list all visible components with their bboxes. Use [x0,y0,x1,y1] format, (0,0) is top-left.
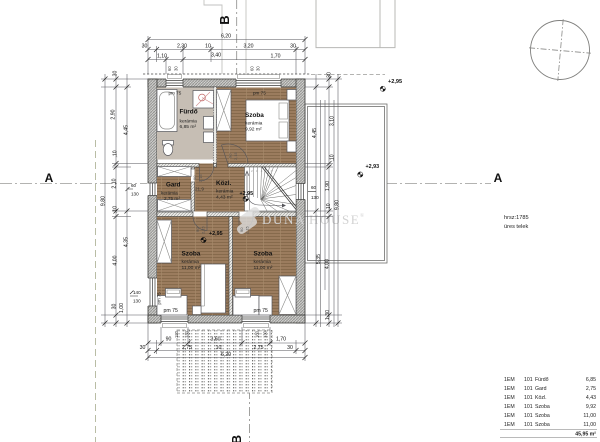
svg-text:3,20: 3,20 [243,44,253,50]
svg-text:2,10: 2,10 [112,178,118,188]
svg-text:101: 101 [524,386,533,392]
svg-text:130: 130 [311,195,319,200]
svg-text:3,60: 3,60 [210,337,220,343]
svg-text:4,00: 4,00 [325,259,331,269]
svg-text:6,20: 6,20 [221,34,231,40]
svg-text:1,70: 1,70 [270,54,280,60]
svg-text:30: 30 [174,66,179,71]
svg-text:kerámia: kerámia [254,259,272,265]
svg-text:30: 30 [142,44,148,50]
svg-text:,10: ,10 [113,150,119,157]
svg-text:A: A [45,171,54,185]
svg-text:Gard: Gard [535,386,547,392]
svg-text:pm 75: pm 75 [254,308,269,314]
svg-text:kerámia: kerámia [182,259,200,265]
svg-text:9,92 m²: 9,92 m² [245,127,262,133]
svg-text:11,00 m²: 11,00 m² [254,265,273,271]
svg-text:üres telek: üres telek [504,224,528,230]
svg-text:60: 60 [250,66,255,71]
svg-text:60: 60 [311,185,317,190]
svg-text:DUNA: DUNA [262,212,306,227]
svg-text:Szoba: Szoba [535,404,550,410]
svg-text:90: 90 [228,153,233,158]
svg-text:3,40: 3,40 [211,53,221,59]
svg-text:Fürdő: Fürdő [535,377,549,383]
svg-text:1EM: 1EM [504,386,515,392]
svg-text:1,10: 1,10 [157,54,167,60]
svg-text:1EM: 1EM [504,395,515,401]
svg-text:130: 130 [131,192,139,197]
svg-text:®: ® [360,212,364,219]
svg-text:10: 10 [205,44,211,50]
svg-text:60: 60 [167,66,172,71]
svg-text:Közl.: Közl. [535,395,547,401]
svg-text:6,20: 6,20 [221,352,231,358]
svg-text:2,15: 2,15 [233,151,238,160]
svg-text:pm 75: pm 75 [169,91,182,96]
svg-text:1EM: 1EM [504,377,515,383]
svg-text:4,43 m²: 4,43 m² [216,195,233,201]
svg-text:4,45: 4,45 [124,125,130,135]
svg-text:kerámia: kerámia [161,191,178,196]
svg-text:130: 130 [263,330,268,338]
svg-text:30: 30 [287,345,293,351]
svg-text:Szoba: Szoba [535,422,550,428]
svg-text:2 3 4 5 6 7: 2 3 4 5 6 7 [251,169,278,173]
svg-text:B: B [229,435,244,442]
svg-text:90: 90 [166,337,172,343]
svg-text:1,00: 1,00 [119,303,125,313]
svg-text:6,85 m²: 6,85 m² [180,124,197,130]
svg-text:30: 30 [113,71,119,77]
svg-text:Szoba: Szoba [254,251,273,258]
svg-text:Fürdő: Fürdő [180,109,198,116]
svg-text:1,70: 1,70 [276,337,286,343]
svg-text:+2,93: +2,93 [366,164,380,170]
svg-text:10: 10 [216,345,222,351]
svg-text:2,75: 2,75 [182,345,192,351]
svg-text:hrsz:1785: hrsz:1785 [504,215,529,221]
svg-text:30: 30 [327,72,333,78]
svg-text:4,35: 4,35 [124,237,130,247]
svg-text:1EM: 1EM [504,422,515,428]
svg-text:130: 130 [185,330,190,338]
svg-text:1EM: 1EM [504,404,515,410]
svg-text:101: 101 [524,413,533,419]
svg-text:9,92: 9,92 [586,404,596,410]
svg-text:90: 90 [195,227,200,232]
svg-text:11,00: 11,00 [583,413,596,419]
svg-text:4,43: 4,43 [586,395,596,401]
svg-text:6,85: 6,85 [586,377,596,383]
svg-text:9,80: 9,80 [101,196,107,206]
svg-text:Szoba: Szoba [535,413,550,419]
svg-text:1,90: 1,90 [325,181,331,191]
svg-text:B: B [217,15,232,24]
svg-text:120: 120 [174,330,179,338]
svg-text:3,10: 3,10 [330,116,336,126]
svg-text:130: 130 [133,299,141,304]
svg-text:A: A [494,171,503,185]
svg-text:90: 90 [239,227,244,232]
svg-text:30: 30 [256,66,261,71]
svg-text:2,15: 2,15 [198,173,203,182]
svg-text:2,75: 2,75 [586,386,596,392]
svg-text:101: 101 [524,377,533,383]
svg-text:+2,95: +2,95 [388,79,402,85]
svg-text:45,95 m²: 45,95 m² [575,432,596,438]
svg-text:Szoba: Szoba [182,251,201,258]
svg-text:2,75: 2,75 [253,345,263,351]
svg-text:9,80: 9,80 [335,200,341,210]
svg-text:140: 140 [133,290,141,295]
svg-text:kerámia: kerámia [245,121,263,127]
svg-text:101: 101 [524,422,533,428]
svg-text:2,15: 2,15 [201,225,206,234]
svg-text:11,00: 11,00 [583,422,596,428]
svg-text:,10: ,10 [330,154,336,161]
svg-text:2,15: 2,15 [245,225,250,234]
svg-text:101: 101 [524,404,533,410]
svg-text:60: 60 [131,183,137,188]
svg-text:2,30: 2,30 [177,44,187,50]
svg-text:30: 30 [290,44,296,50]
svg-text:180: 180 [255,330,260,338]
svg-text:kerámia: kerámia [216,189,234,195]
svg-text:21,9: 21,9 [195,187,204,192]
svg-text:11,00 m²: 11,00 m² [182,265,201,271]
svg-text:30: 30 [140,345,146,351]
svg-text:2,90: 2,90 [111,109,117,119]
svg-text:+2,95: +2,95 [209,231,223,237]
svg-text:90: 90 [192,175,197,180]
svg-text:5,35: 5,35 [316,254,322,264]
svg-text:pm 75: pm 75 [157,292,162,305]
svg-text:,10: ,10 [113,206,119,213]
svg-text:101: 101 [524,395,533,401]
svg-text:4,00: 4,00 [113,255,119,265]
svg-text:Közl.: Közl. [216,180,231,187]
svg-text:HOUSE: HOUSE [309,212,360,227]
svg-text:Szoba: Szoba [245,112,264,119]
svg-text:4,45: 4,45 [312,128,318,138]
svg-text:pm 75: pm 75 [253,91,266,96]
svg-text:30: 30 [112,304,118,310]
svg-text:Gard: Gard [166,182,181,189]
svg-text:kerámia: kerámia [180,119,198,125]
svg-text:,10: ,10 [326,203,332,210]
svg-text:2,75 m²: 2,75 m² [164,196,180,201]
svg-text:pm 75: pm 75 [164,308,179,314]
svg-text:1EM: 1EM [504,413,515,419]
svg-text:1,30: 1,30 [325,310,331,320]
